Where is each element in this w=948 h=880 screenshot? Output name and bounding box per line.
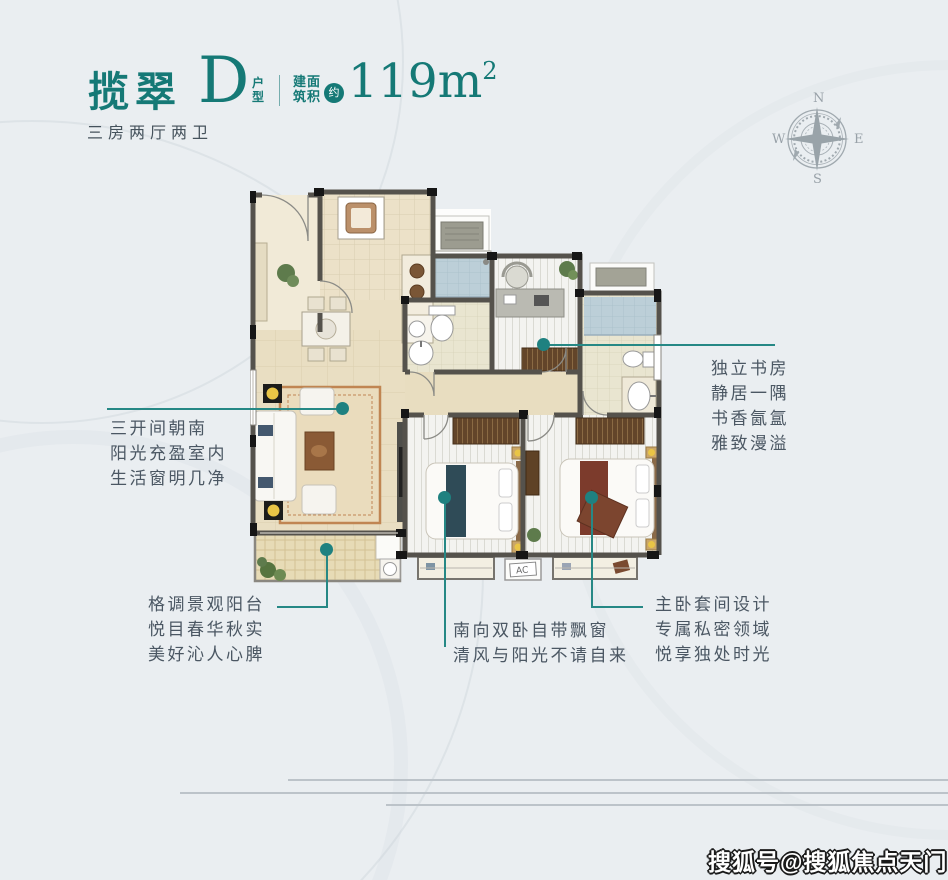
callout-line-balcony-h <box>277 606 328 608</box>
callout-line-study <box>543 344 775 346</box>
armchair <box>302 485 336 514</box>
compass-east-label: E <box>854 132 864 147</box>
laptop-icon <box>534 295 549 306</box>
entry-cabinet <box>255 243 267 321</box>
callout-line-living <box>107 408 343 410</box>
lamp-icon <box>515 544 522 551</box>
ac-label: AC <box>516 566 529 577</box>
hallway-floor <box>405 372 580 415</box>
unit-letter: D <box>198 44 249 118</box>
pillow <box>636 465 649 493</box>
window <box>654 335 661 380</box>
washbasin-icon <box>384 563 397 576</box>
dresser <box>526 451 539 495</box>
wardrobe <box>576 418 644 444</box>
approx-badge: 约 <box>324 83 344 103</box>
plant-icon <box>527 528 541 542</box>
bay-window-decor <box>426 563 435 570</box>
bay-window-decor <box>562 563 571 570</box>
unit-type-label: 户 型 <box>252 76 265 104</box>
toilet-tank <box>429 306 455 315</box>
built-area-label: 建面 筑积 <box>293 75 321 105</box>
master-shower <box>584 297 656 335</box>
decorative-rule <box>180 792 948 794</box>
callout-dot-master <box>585 491 598 504</box>
dining-chair <box>308 348 324 361</box>
ac-unit <box>441 222 483 249</box>
compass-north-label: N <box>813 91 824 106</box>
desk-chair <box>506 266 528 288</box>
project-name: 揽翠 <box>88 58 182 118</box>
floorplan-advert-page: { "header": { "project_name": "揽翠", "uni… <box>0 0 948 880</box>
small-basin <box>409 321 425 337</box>
floor-lamp-light <box>267 388 279 400</box>
lamp-icon <box>648 541 655 548</box>
callout-dot-living <box>336 402 349 415</box>
plant-icon <box>568 270 578 280</box>
lamp-icon <box>515 450 522 457</box>
toilet-tank <box>643 352 654 367</box>
pillow <box>636 499 649 527</box>
dining-chair <box>330 348 346 361</box>
callout-line-balcony-v <box>326 549 328 607</box>
toilet-icon <box>623 351 643 367</box>
floor-lamp-light <box>268 505 280 517</box>
area-number: 119 <box>348 54 438 109</box>
callout-line-bedroom <box>444 497 446 647</box>
area-value: 119m2 <box>348 54 498 109</box>
dining-chair <box>330 297 346 310</box>
callout-line-master-v <box>591 497 593 608</box>
armchair <box>300 388 334 415</box>
coffee-table-decor <box>311 445 327 457</box>
header-divider <box>279 75 280 106</box>
note-living: 三开间朝南 阳光充盈室内 生活窗明几净 <box>110 417 227 492</box>
watermark: 搜狐号@搜狐焦点天门站 <box>708 843 948 880</box>
floor-plan: AC <box>250 185 665 587</box>
kitchen-sink-basin <box>351 208 371 228</box>
dining-chair <box>308 297 324 310</box>
decorative-rule <box>288 779 948 781</box>
plant-icon <box>274 569 286 581</box>
note-bedroom: 南向双卧自带飘窗 清风与阳光不请自来 <box>453 619 629 669</box>
callout-dot-study <box>537 338 550 351</box>
compass-rose-icon: N E S W <box>768 90 866 188</box>
bookshelf <box>522 348 578 371</box>
note-master: 主卧套间设计 专属私密领域 悦享独处时光 <box>655 593 772 668</box>
area-unit: m <box>438 54 483 109</box>
lamp-icon <box>648 449 655 456</box>
note-balcony: 格调景观阳台 悦目春华秋实 美好沁人心脾 <box>148 593 265 668</box>
callout-line-master-h <box>591 606 643 608</box>
compass-west-label: W <box>772 132 786 147</box>
stove-burner <box>410 264 424 278</box>
sofa-pillow <box>258 425 273 436</box>
note-study: 独立书房 静居一隅 书香氤氲 雅致漫溢 <box>711 357 789 457</box>
plant-icon <box>257 557 267 567</box>
pillow <box>499 503 512 531</box>
area-superscript: 2 <box>482 57 497 85</box>
pillow <box>499 469 512 497</box>
wardrobe <box>453 418 519 444</box>
ac-unit <box>596 268 646 286</box>
compass-south-label: S <box>813 172 822 187</box>
desk-papers <box>504 295 516 304</box>
washbasin-icon <box>628 382 650 410</box>
callout-dot-bedroom <box>438 491 451 504</box>
toilet-icon <box>431 315 453 341</box>
layout-subtitle: 三房两厅两卫 <box>87 119 213 143</box>
sofa-pillow <box>258 477 273 488</box>
stove-burner <box>410 285 424 299</box>
callout-dot-balcony <box>320 543 333 556</box>
plant-icon <box>287 275 299 287</box>
decorative-rule <box>386 804 948 806</box>
